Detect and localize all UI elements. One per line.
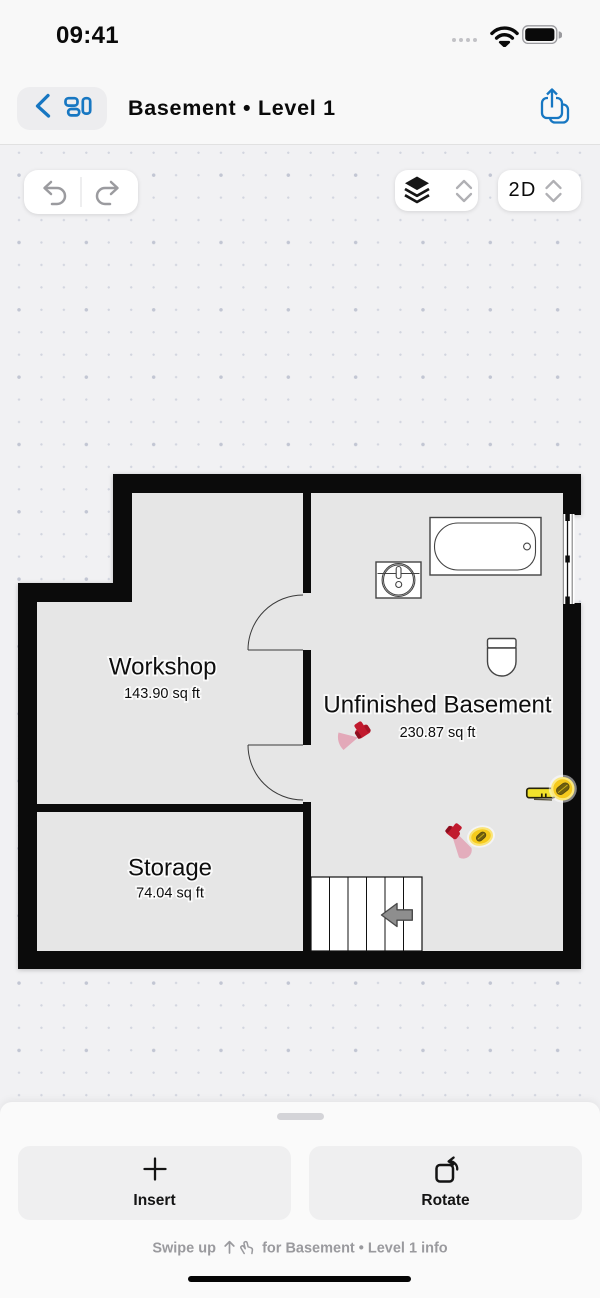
- svg-text:143.90 sq ft: 143.90 sq ft: [124, 686, 200, 702]
- svg-text:74.04 sq ft: 74.04 sq ft: [136, 886, 204, 902]
- svg-text:Workshop: Workshop: [109, 654, 217, 681]
- svg-text:230.87 sq ft: 230.87 sq ft: [400, 725, 476, 741]
- svg-text:Unfinished Basement: Unfinished Basement: [323, 692, 551, 719]
- svg-text:Storage: Storage: [128, 855, 212, 882]
